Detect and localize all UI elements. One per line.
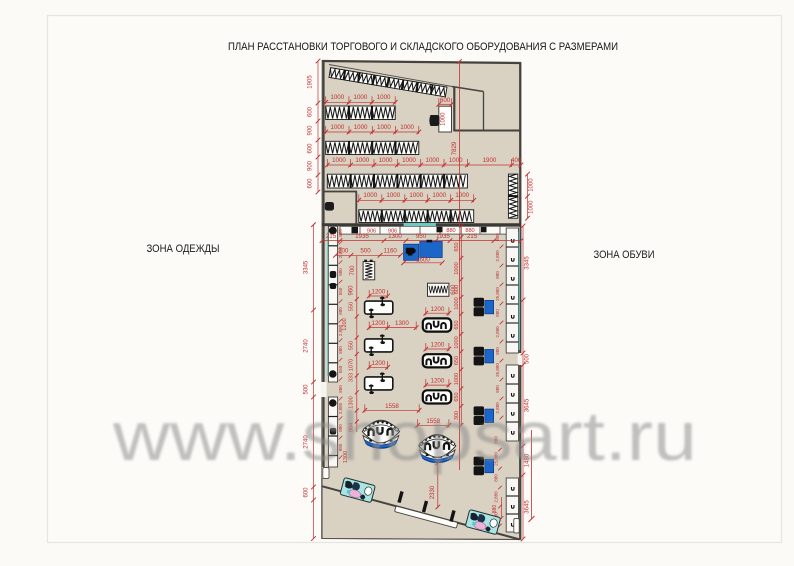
svg-text:1200: 1200 [431,306,445,313]
svg-text:25,880: 25,880 [495,363,500,377]
svg-text:550: 550 [338,287,343,295]
svg-text:600: 600 [308,178,314,189]
svg-text:1000: 1000 [377,124,391,131]
svg-text:1000: 1000 [454,373,460,385]
svg-text:ЗОНА ОБУВИ: ЗОНА ОБУВИ [594,249,655,261]
svg-text:ПЛАН РАССТАНОВКИ ТОРГОВОГО И С: ПЛАН РАССТАНОВКИ ТОРГОВОГО И СКЛАДСКОГО … [228,41,618,53]
svg-text:2330: 2330 [430,485,436,499]
svg-text:1905: 1905 [308,75,314,89]
svg-text:1900: 1900 [483,157,497,164]
svg-text:600: 600 [304,487,310,498]
svg-text:1000: 1000 [529,178,535,192]
svg-text:550: 550 [349,341,355,350]
svg-text:1000: 1000 [379,157,393,164]
svg-text:1000: 1000 [386,192,400,199]
svg-text:400: 400 [511,157,522,164]
svg-text:880: 880 [495,385,500,393]
svg-text:1000: 1000 [330,94,344,101]
svg-text:1200: 1200 [431,342,445,349]
svg-text:333: 333 [349,373,355,382]
svg-text:880: 880 [495,347,500,355]
svg-text:700: 700 [350,265,356,276]
svg-text:500: 500 [360,248,371,255]
svg-text:1000: 1000 [529,200,535,214]
svg-text:1000: 1000 [354,124,368,131]
svg-text:3645: 3645 [525,500,531,514]
svg-text:ЗОНА ОДЕЖДЫ: ЗОНА ОДЕЖДЫ [147,243,220,255]
svg-text:1200: 1200 [342,318,348,330]
svg-text:550: 550 [338,365,343,373]
svg-text:1070: 1070 [349,359,355,371]
svg-text:880: 880 [338,346,343,354]
svg-text:880: 880 [338,229,343,237]
svg-text:215: 215 [467,233,478,240]
svg-text:1000: 1000 [355,157,369,164]
svg-text:www.shopsart.ru: www.shopsart.ru [112,397,697,475]
svg-text:1600: 1600 [416,256,430,263]
svg-text:600: 600 [454,285,460,294]
svg-text:2,880: 2,880 [494,491,499,503]
svg-text:1000: 1000 [400,124,414,131]
svg-text:500: 500 [525,353,531,364]
svg-text:1000: 1000 [354,94,368,101]
svg-text:960: 960 [349,285,355,296]
svg-text:950: 950 [416,233,427,240]
svg-text:600: 600 [308,143,314,154]
svg-text:1300: 1300 [388,233,402,240]
svg-text:500: 500 [304,384,310,395]
svg-text:600: 600 [440,97,451,104]
svg-text:600: 600 [308,106,314,117]
svg-text:1200: 1200 [372,360,386,367]
svg-text:3345: 3345 [525,256,531,270]
svg-text:1000: 1000 [454,297,460,309]
svg-text:650: 650 [454,320,460,329]
svg-text:550: 550 [349,302,355,311]
svg-text:880: 880 [338,268,343,276]
svg-text:1200: 1200 [431,378,445,385]
svg-text:1000: 1000 [331,124,345,131]
svg-text:2,880: 2,880 [495,326,500,338]
svg-text:1000: 1000 [363,192,377,199]
svg-text:7829: 7829 [451,141,458,155]
svg-text:200: 200 [338,248,349,255]
svg-text:1000: 1000 [332,157,346,164]
svg-text:1935: 1935 [436,233,450,240]
svg-text:25,880: 25,880 [495,287,500,301]
svg-text:880: 880 [492,505,498,514]
svg-text:880: 880 [338,307,343,315]
svg-text:1160: 1160 [384,248,398,255]
svg-text:1000: 1000 [402,157,416,164]
svg-text:1000: 1000 [454,262,460,274]
svg-text:1200: 1200 [372,289,386,296]
svg-text:880: 880 [495,271,500,279]
svg-text:2,880: 2,880 [495,250,500,262]
svg-text:880: 880 [495,309,500,317]
svg-text:1000: 1000 [441,112,447,126]
svg-text:1200: 1200 [372,320,386,327]
svg-text:1000: 1000 [426,157,440,164]
svg-text:215: 215 [326,233,337,240]
svg-text:900: 900 [308,160,314,171]
svg-text:1000: 1000 [455,192,469,199]
svg-text:1000: 1000 [449,157,463,164]
svg-text:1000: 1000 [454,336,460,348]
svg-text:880: 880 [338,385,343,393]
svg-text:650: 650 [454,242,460,251]
svg-text:1300: 1300 [395,320,409,327]
svg-text:3345: 3345 [304,260,310,274]
svg-text:1000: 1000 [409,192,423,199]
svg-text:1000: 1000 [432,192,446,199]
svg-text:2740: 2740 [304,339,310,353]
svg-text:1000: 1000 [377,94,391,101]
svg-text:650: 650 [454,356,460,365]
svg-text:900: 900 [308,125,314,136]
svg-text:1935: 1935 [355,233,369,240]
